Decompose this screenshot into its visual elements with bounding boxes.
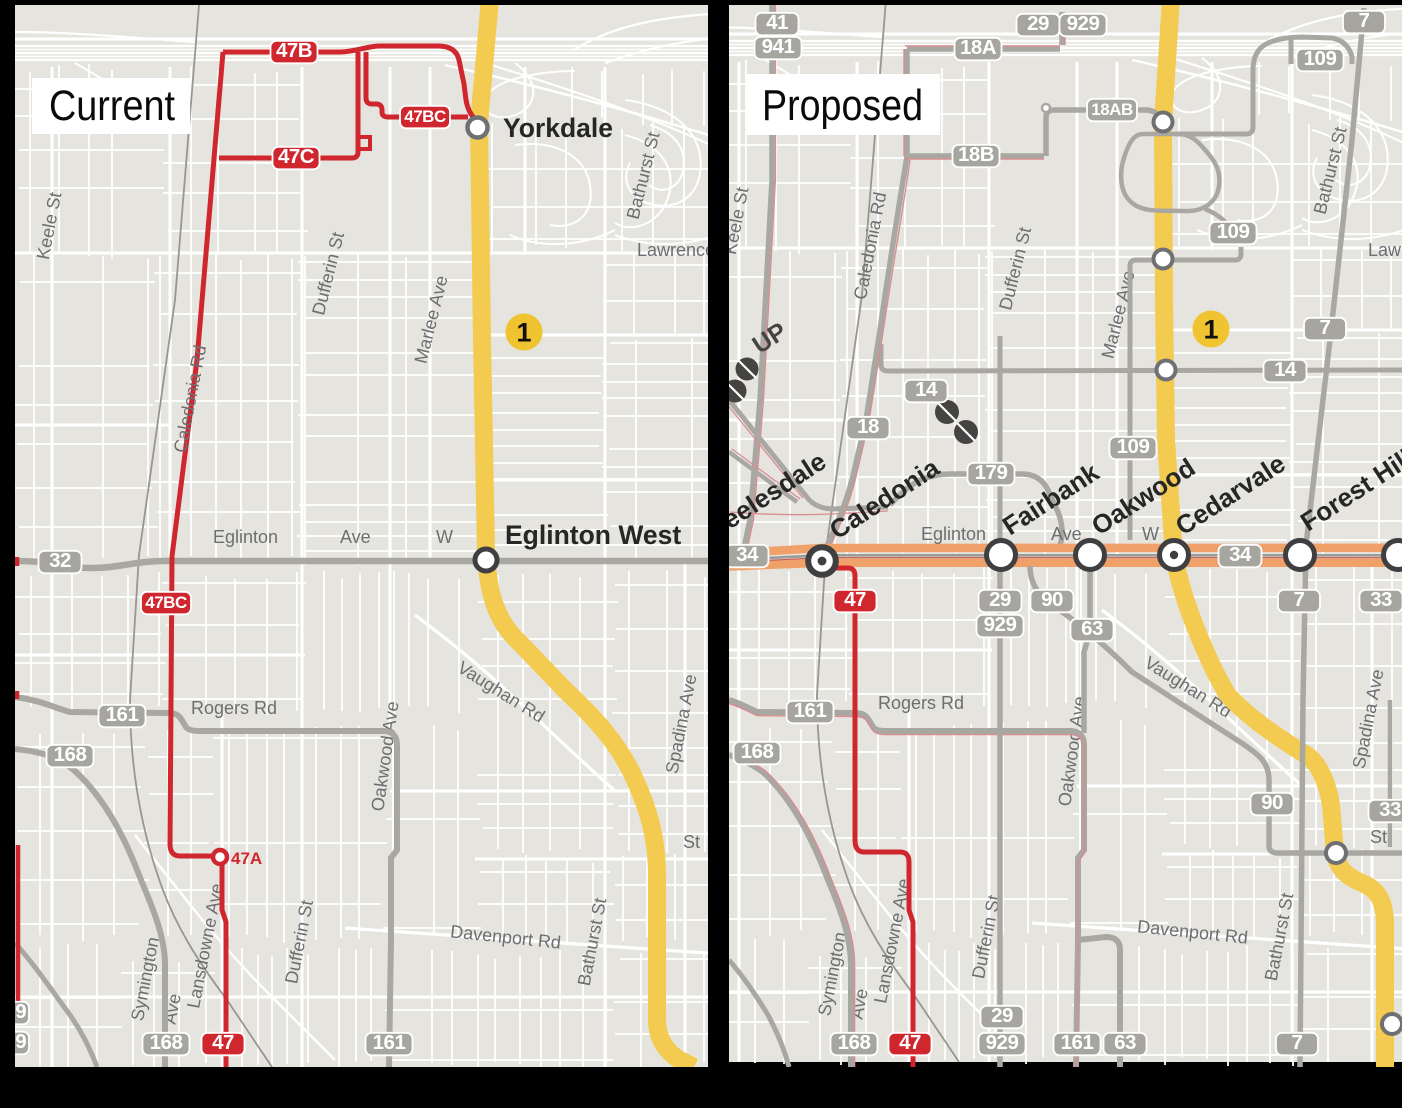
svg-text:18B: 18B [958,143,994,166]
svg-text:Proposed: Proposed [762,81,923,130]
svg-text:18: 18 [857,415,879,438]
svg-text:168: 168 [741,740,774,763]
svg-text:33: 33 [1379,798,1401,821]
svg-text:109: 109 [1217,220,1250,243]
svg-text:161: 161 [106,703,139,726]
svg-text:90: 90 [1261,791,1283,814]
svg-text:33: 33 [1370,588,1392,611]
svg-text:29: 29 [1027,12,1049,35]
svg-text:29: 29 [989,588,1011,611]
svg-text:1: 1 [516,318,531,348]
svg-text:18A: 18A [960,36,997,59]
svg-text:47: 47 [212,1031,234,1054]
svg-text:Yorkdale: Yorkdale [503,113,613,143]
svg-text:47B: 47B [276,39,312,62]
svg-text:47: 47 [844,588,866,611]
svg-text:Eglinton West: Eglinton West [505,520,681,550]
svg-text:47: 47 [899,1031,921,1054]
svg-text:W: W [436,527,453,547]
svg-text:9: 9 [15,1000,26,1023]
svg-text:161: 161 [794,699,827,722]
svg-text:34: 34 [736,543,759,566]
svg-text:168: 168 [54,743,87,766]
svg-text:179: 179 [975,461,1008,484]
svg-text:161: 161 [1061,1031,1094,1054]
svg-text:47BC: 47BC [404,107,446,126]
svg-text:168: 168 [838,1031,871,1054]
svg-text:47BC: 47BC [145,593,187,612]
svg-text:161: 161 [373,1031,406,1054]
svg-text:Lawrence: Lawrence [637,240,715,260]
svg-text:929: 929 [984,613,1017,636]
svg-text:14: 14 [915,378,938,401]
svg-text:Current: Current [49,82,175,130]
svg-text:Ave: Ave [340,527,371,547]
svg-text:7: 7 [1359,9,1370,32]
svg-text:Ave: Ave [1051,524,1082,544]
svg-text:7: 7 [1320,316,1331,339]
svg-text:Eglinton: Eglinton [213,527,278,547]
svg-text:90: 90 [1041,588,1063,611]
svg-text:63: 63 [1114,1031,1136,1054]
svg-text:47C: 47C [278,145,315,168]
svg-text:29: 29 [991,1004,1013,1027]
svg-text:7: 7 [1294,588,1305,611]
svg-text:109: 109 [1117,435,1150,458]
svg-text:Lawrence: Lawrence [1368,240,1402,260]
svg-text:41: 41 [766,11,788,34]
svg-text:929: 929 [986,1031,1019,1054]
svg-text:7: 7 [1292,1031,1303,1054]
svg-text:63: 63 [1081,617,1103,640]
svg-text:18AB: 18AB [1091,100,1133,119]
svg-text:168: 168 [150,1031,183,1054]
svg-text:109: 109 [1304,47,1337,70]
svg-text:941: 941 [762,35,795,58]
svg-text:1: 1 [1203,315,1218,345]
svg-text:47A: 47A [231,849,262,868]
svg-text:14: 14 [1274,358,1297,381]
svg-text:32: 32 [49,549,71,572]
svg-text:Eglinton: Eglinton [921,524,986,544]
svg-text:34: 34 [1229,543,1252,566]
svg-text:9: 9 [15,1030,26,1053]
svg-text:929: 929 [1067,12,1100,35]
svg-text:W: W [1142,524,1159,544]
